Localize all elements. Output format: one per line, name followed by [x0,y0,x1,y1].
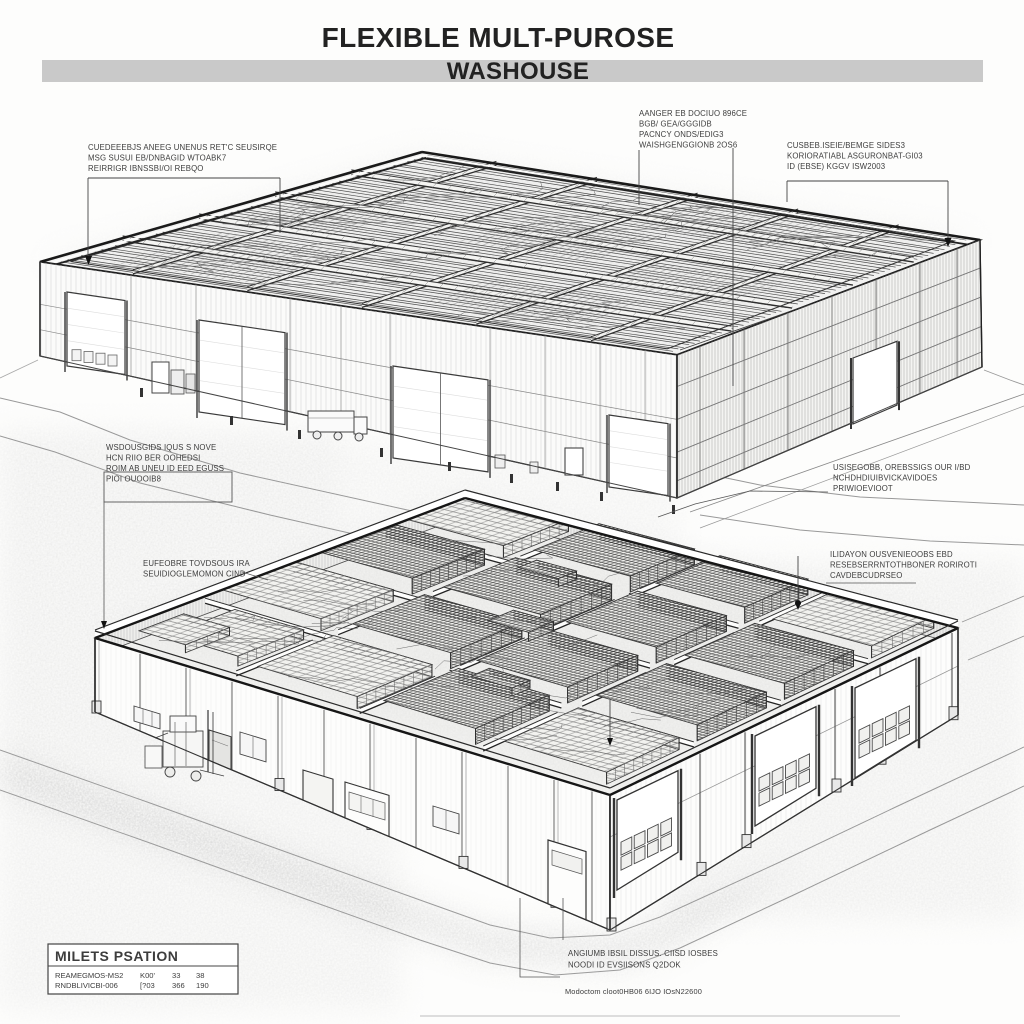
svg-text:WASHOUSE: WASHOUSE [447,58,589,85]
svg-text:MILETS PSATION: MILETS PSATION [55,948,178,964]
svg-text:FLEXIBLE MULT-PUROSE: FLEXIBLE MULT-PUROSE [322,22,675,53]
svg-text:Modoctom cloot0HB06 6IJO IOsN2: Modoctom cloot0HB06 6IJO IOsN22600 [565,987,702,996]
svg-text:EUFEOBRE TOVDSOUS IRASEUIDIOGL: EUFEOBRE TOVDSOUS IRASEUIDIOGLEMOMON CIN… [143,559,250,579]
